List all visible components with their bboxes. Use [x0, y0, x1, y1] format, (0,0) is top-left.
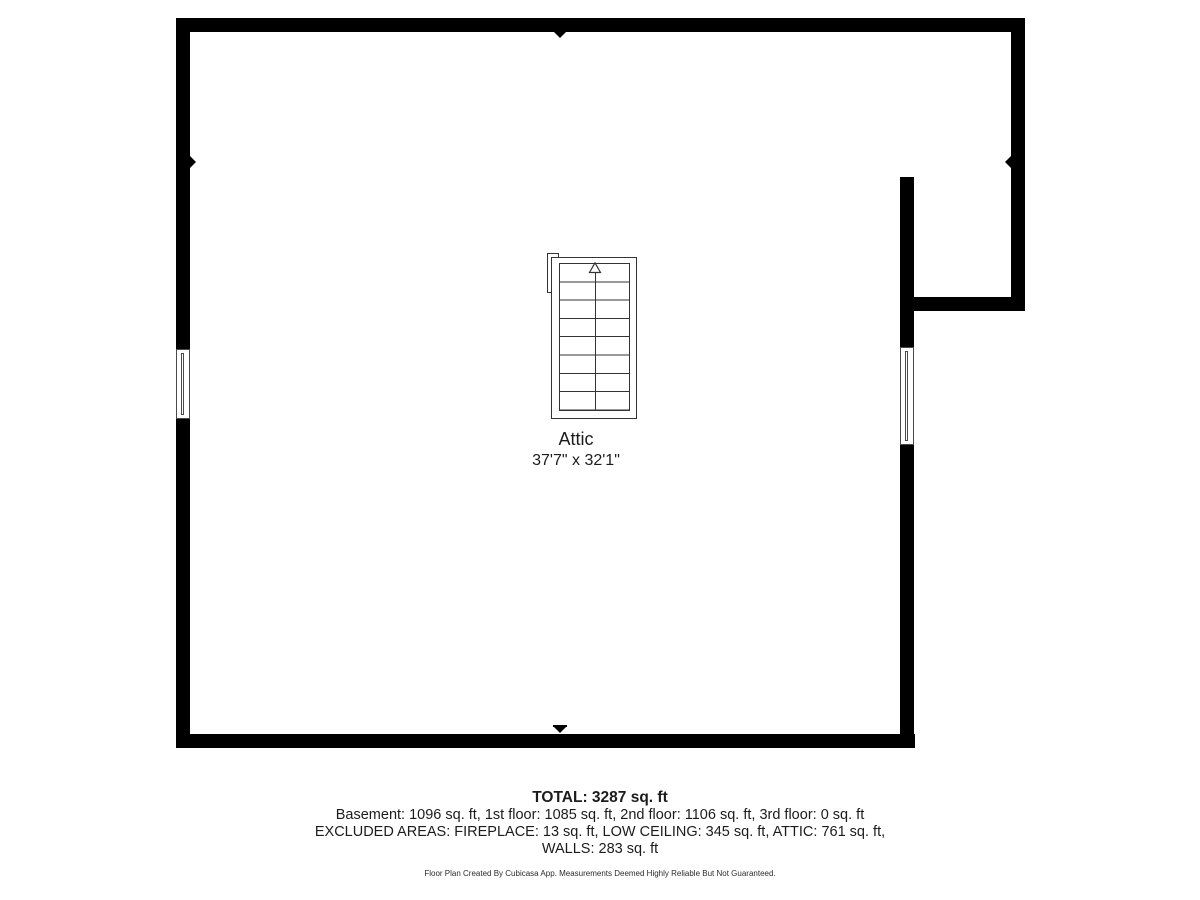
disclaimer: Floor Plan Created By Cubicasa App. Meas…	[0, 869, 1200, 879]
room-label: Attic 37'7" x 32'1"	[476, 428, 676, 471]
wall-right-outer	[1011, 18, 1025, 311]
stair-up-arrow-icon	[588, 262, 602, 274]
room-dimensions: 37'7" x 32'1"	[476, 450, 676, 471]
arrow-marker-top-icon	[554, 32, 566, 38]
floor-plan-page: Attic 37'7" x 32'1" TOTAL: 3287 sq. ft B…	[0, 0, 1200, 900]
window-pane	[905, 351, 908, 441]
room-name: Attic	[476, 428, 676, 450]
wall-notch	[900, 297, 1025, 311]
wall-interior-right	[900, 177, 914, 748]
staircase	[547, 253, 641, 421]
total-area: TOTAL: 3287 sq. ft	[0, 789, 1200, 807]
excluded-areas: EXCLUDED AREAS: FIREPLACE: 13 sq. ft, LO…	[0, 824, 1200, 841]
stair-treads	[559, 263, 630, 411]
area-summary: TOTAL: 3287 sq. ft Basement: 1096 sq. ft…	[0, 789, 1200, 879]
window-right	[900, 347, 914, 445]
window-pane	[181, 353, 184, 415]
arrow-marker-bottom-icon	[554, 727, 566, 733]
stair-divider	[595, 264, 596, 410]
arrow-marker-right-icon	[1005, 156, 1011, 168]
floor-areas: Basement: 1096 sq. ft, 1st floor: 1085 s…	[0, 807, 1200, 824]
window-left	[176, 349, 190, 419]
arrow-marker-left-icon	[190, 156, 196, 168]
excluded-areas-wrap: WALLS: 283 sq. ft	[0, 841, 1200, 858]
wall-bottom	[176, 734, 915, 748]
wall-top	[176, 18, 1025, 32]
